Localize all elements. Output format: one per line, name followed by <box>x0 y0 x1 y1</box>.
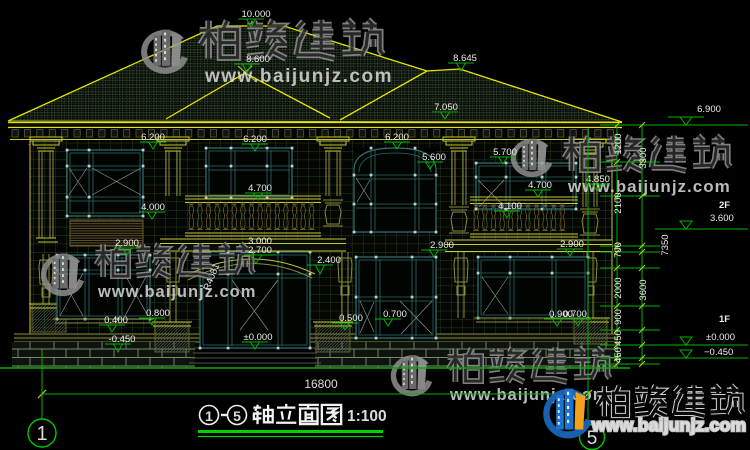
svg-text:1: 1 <box>36 423 47 445</box>
svg-text:8.645: 8.645 <box>453 53 477 64</box>
svg-text:2100: 2100 <box>613 192 624 213</box>
svg-text:450: 450 <box>613 347 624 363</box>
svg-text:1:100: 1:100 <box>347 408 387 425</box>
svg-text:8.600: 8.600 <box>246 54 270 65</box>
svg-text:5.700: 5.700 <box>493 147 517 158</box>
svg-text:16800: 16800 <box>304 377 338 391</box>
svg-text:2.900: 2.900 <box>430 240 454 251</box>
svg-text:3.600: 3.600 <box>710 213 734 224</box>
svg-text:4.100: 4.100 <box>498 201 522 212</box>
svg-text:www.baijunjz.com: www.baijunjz.com <box>97 283 256 301</box>
svg-text:1: 1 <box>205 408 213 424</box>
svg-text:6.200: 6.200 <box>243 134 267 145</box>
svg-text:6.900: 6.900 <box>697 104 721 115</box>
svg-text:4.000: 4.000 <box>141 202 165 213</box>
svg-text:-0.450: -0.450 <box>109 334 136 345</box>
svg-text:0.400: 0.400 <box>104 315 128 326</box>
svg-text:3300: 3300 <box>638 147 649 168</box>
svg-text:2.900: 2.900 <box>115 238 139 249</box>
svg-text:2.400: 2.400 <box>317 255 341 266</box>
svg-text:6.200: 6.200 <box>385 132 409 143</box>
svg-text:−0.450: −0.450 <box>704 347 733 358</box>
svg-text:±0.000: ±0.000 <box>244 332 273 343</box>
svg-text:1200: 1200 <box>613 133 624 154</box>
svg-text:6.200: 6.200 <box>141 132 165 143</box>
svg-text:0.700: 0.700 <box>563 309 587 320</box>
svg-text:450: 450 <box>613 330 624 346</box>
svg-text:0.700: 0.700 <box>383 309 407 320</box>
svg-text:4.700: 4.700 <box>248 183 272 194</box>
svg-text:3600: 3600 <box>638 279 649 300</box>
svg-text:www.baijunjz.com: www.baijunjz.com <box>204 66 393 87</box>
svg-text:10.000: 10.000 <box>241 9 270 20</box>
svg-text:www.baijunjz.com: www.baijunjz.com <box>591 415 746 435</box>
svg-text:5.600: 5.600 <box>422 152 446 163</box>
svg-text:1F: 1F <box>719 314 730 325</box>
svg-text:5: 5 <box>233 408 241 424</box>
svg-text:7350: 7350 <box>660 234 671 255</box>
svg-text:4.850: 4.850 <box>586 174 610 185</box>
svg-text:700: 700 <box>613 242 624 258</box>
svg-text:±0.000: ±0.000 <box>706 332 735 343</box>
svg-text:4.700: 4.700 <box>528 180 552 191</box>
svg-text:2.700: 2.700 <box>248 245 272 256</box>
svg-text:2000: 2000 <box>613 277 624 298</box>
svg-text:900: 900 <box>613 309 624 325</box>
svg-text:2F: 2F <box>719 200 730 211</box>
svg-text:7.050: 7.050 <box>434 102 458 113</box>
svg-text:2.900: 2.900 <box>560 239 584 250</box>
svg-text:0.500: 0.500 <box>339 313 363 324</box>
svg-text:0.800: 0.800 <box>146 308 170 319</box>
